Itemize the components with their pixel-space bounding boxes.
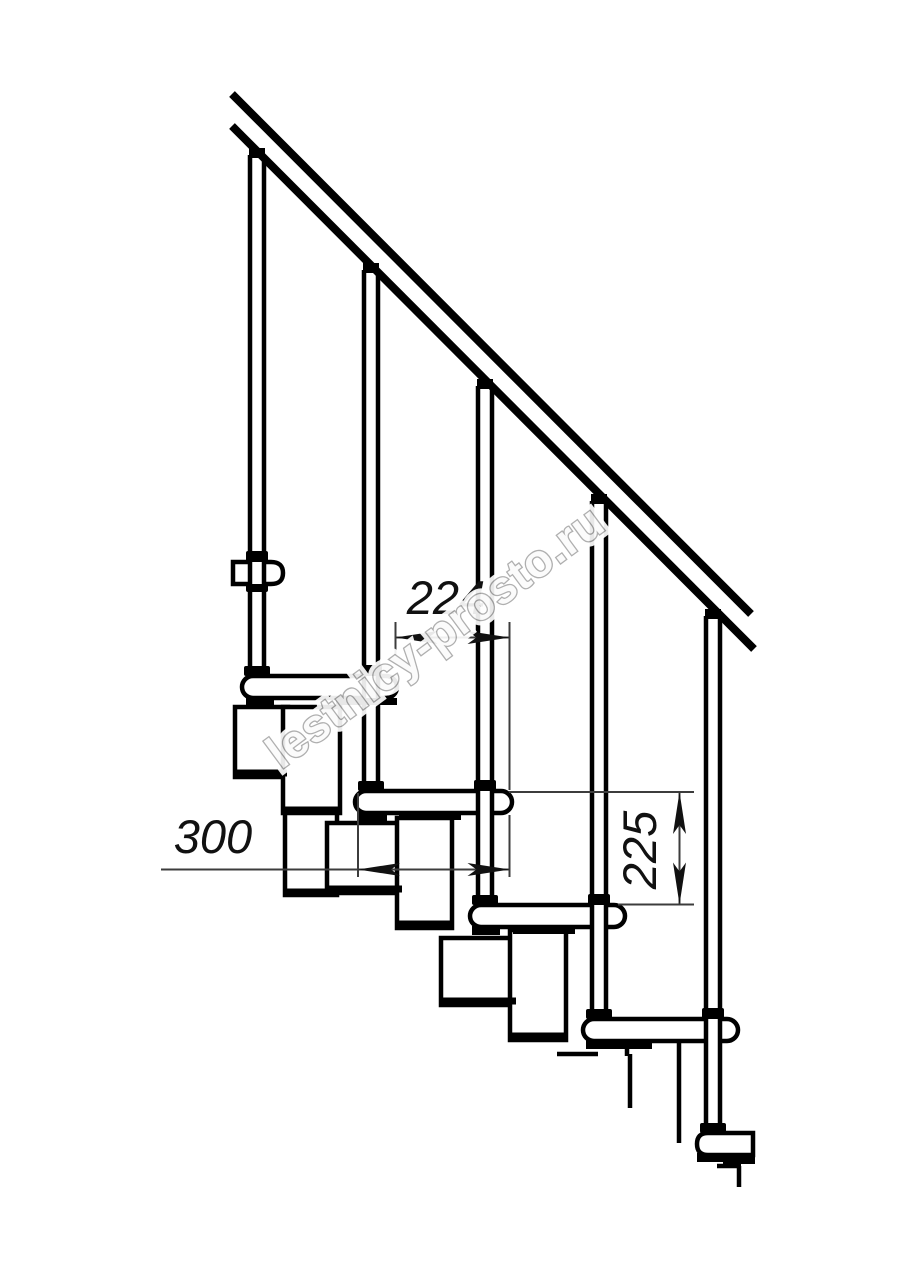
baluster-collar <box>588 894 610 905</box>
baluster-1 <box>248 155 266 676</box>
module-box <box>397 818 452 928</box>
baluster-collar <box>246 551 268 562</box>
fittings <box>244 148 755 1164</box>
baluster-base <box>358 781 384 791</box>
tread-bracket <box>359 812 387 821</box>
module-box <box>510 930 566 1040</box>
staircase-drawing-canvas: 224 300 225 lestnicy-prosto.ru lestnicy-… <box>0 0 914 1280</box>
tread-bracket <box>697 1153 724 1162</box>
baluster-base <box>700 1123 726 1133</box>
baluster-collar <box>702 1008 724 1019</box>
module-box <box>327 823 403 893</box>
baluster-base <box>586 1009 612 1019</box>
staircase-drawing: 224 300 225 lestnicy-prosto.ru lestnicy-… <box>0 0 914 1280</box>
baluster-base <box>472 895 498 905</box>
tread-bracket <box>246 697 274 706</box>
module-box <box>441 938 518 1005</box>
baluster-5 <box>704 616 722 1133</box>
baluster-base <box>244 666 270 676</box>
tread-plate <box>723 1155 755 1164</box>
dimension-label-225: 225 <box>613 810 666 890</box>
tread-plate <box>399 813 461 820</box>
watermark: lestnicy-prosto.ru lestnicy-prosto.ru <box>256 494 614 778</box>
tread-plate <box>513 927 575 934</box>
baluster-4 <box>590 501 608 1019</box>
tread-bracket <box>472 926 500 935</box>
baluster-3 <box>476 386 494 905</box>
baluster-collar <box>474 780 496 791</box>
tread-5-fragment <box>697 1133 753 1155</box>
tread-plate <box>612 1041 652 1049</box>
dimension-label-300: 300 <box>174 810 252 863</box>
tread-bracket <box>586 1040 614 1049</box>
watermark-text: lestnicy-prosto.ru <box>256 494 614 778</box>
baluster-collar <box>246 584 268 592</box>
